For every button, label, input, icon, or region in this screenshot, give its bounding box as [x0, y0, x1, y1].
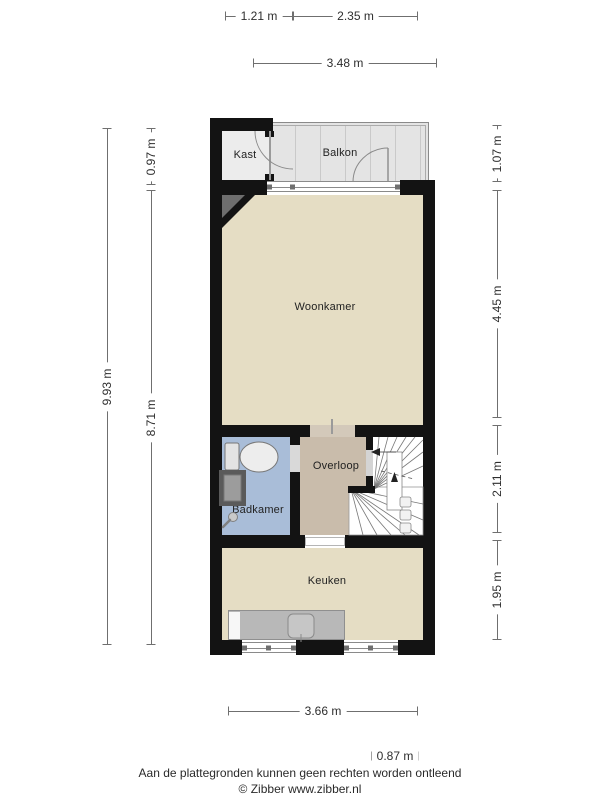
window-mullion	[291, 645, 296, 650]
dimension-top-2: 2.35 m	[293, 9, 418, 22]
wall-keuken-top-left	[222, 535, 305, 548]
room-label-overloop: Overloop	[313, 460, 359, 472]
wall-bottom-left	[210, 640, 242, 655]
dimension-label: 1.21 m	[236, 9, 283, 23]
dimension-label: 0.97 m	[144, 132, 158, 181]
wall-right	[423, 180, 435, 655]
floorplan-canvas: Kast Balkon Woonkamer Overloop Badkamer …	[0, 0, 600, 800]
window-mullion	[266, 645, 271, 650]
wall-top-kast	[210, 118, 273, 131]
room-label-badkamer: Badkamer	[232, 504, 284, 516]
dimension-label: 8.71 m	[144, 393, 158, 442]
kitchen-counter	[228, 610, 345, 640]
wall-bottom-middle	[296, 640, 344, 655]
window-glass-line	[267, 187, 400, 188]
dimension-right-3: 2.11 m	[490, 425, 503, 533]
dimension-label: 2.11 m	[490, 455, 504, 503]
partition-kast-balkon	[269, 131, 271, 180]
window-keuken-1	[242, 642, 296, 653]
dimension-right-4: 1.95 m	[490, 540, 503, 640]
room-overloop-floor	[300, 437, 366, 535]
dimension-label: 0.87 m	[372, 749, 419, 763]
dimension-top-1: 1.21 m	[225, 9, 293, 22]
wall-mid-left	[222, 425, 310, 437]
dimension-right-1: 1.07 m	[490, 125, 503, 182]
dimension-label: 3.48 m	[322, 56, 369, 70]
room-label-kast: Kast	[234, 149, 257, 161]
wall-bottom-right	[398, 640, 435, 655]
dimension-label: 9.93 m	[100, 362, 114, 411]
dimension-label: 3.66 m	[300, 704, 347, 718]
dimension-left-total: 9.93 m	[100, 128, 113, 645]
window-mullion	[393, 645, 398, 650]
dimension-right-2: 4.45 m	[490, 190, 503, 418]
kitchen-appliance-gap	[229, 612, 240, 639]
window-balkon-doors	[267, 181, 400, 192]
room-label-keuken: Keuken	[308, 575, 347, 587]
window-mullion	[344, 645, 349, 650]
window-mullion	[242, 645, 247, 650]
window-mullion	[368, 645, 373, 650]
dimension-label: 2.35 m	[332, 9, 379, 23]
room-label-balkon: Balkon	[323, 147, 358, 159]
dimension-bottom-2: 0.87 m	[371, 749, 419, 762]
footer: Aan de plattegronden kunnen geen rechten…	[0, 765, 600, 797]
opening-stairs	[366, 450, 373, 476]
room-label-woonkamer: Woonkamer	[295, 301, 356, 313]
dimension-left-1: 0.97 m	[144, 128, 157, 185]
wall-woonkamer-top-right	[400, 180, 435, 195]
dimension-bottom-1: 3.66 m	[228, 704, 418, 717]
disclaimer-text: Aan de plattegronden kunnen geen rechten…	[0, 765, 600, 781]
dimension-label: 4.45 m	[490, 280, 504, 329]
dimension-label: 1.07 m	[490, 129, 504, 178]
copyright-text: © Zibber www.zibber.nl	[0, 781, 600, 797]
window-mullion	[267, 184, 272, 189]
wall-keuken-top-right	[345, 535, 423, 548]
dimension-left-2: 8.71 m	[144, 190, 157, 645]
wall-mid-right	[355, 425, 423, 437]
window-keuken-2	[344, 642, 398, 653]
dimension-top-total: 3.48 m	[253, 56, 437, 69]
opening-badkamer	[290, 445, 300, 472]
opening-overloop-keuken	[305, 537, 345, 546]
wall-left	[210, 118, 222, 655]
dimension-label: 1.95 m	[490, 566, 504, 615]
opening-tick	[331, 419, 333, 434]
window-mullion	[395, 184, 400, 189]
wall-woonkamer-top-left	[210, 180, 267, 195]
window-mullion	[290, 184, 295, 189]
room-badkamer-floor	[222, 437, 290, 535]
